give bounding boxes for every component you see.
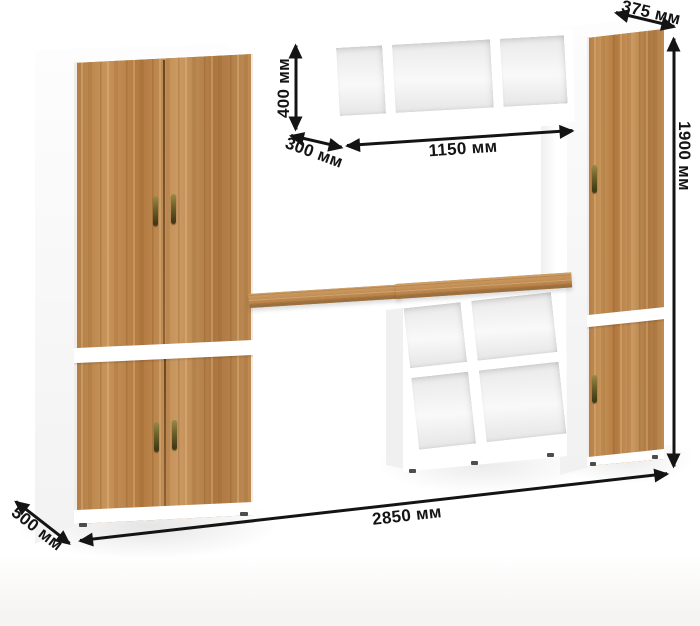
cube-opening xyxy=(404,302,467,368)
wall-shelf-compartments xyxy=(336,29,571,120)
door-handle-icon xyxy=(172,420,177,450)
door-handle-icon xyxy=(592,375,597,403)
wall-shelf xyxy=(302,28,575,140)
shelf-opening xyxy=(500,35,568,106)
door-handle-icon xyxy=(592,165,597,193)
cabinet-foot xyxy=(471,461,478,465)
left-cabinet-left-edge xyxy=(74,54,77,526)
cube-opening xyxy=(411,372,476,450)
shelf-opening xyxy=(392,39,494,112)
right-cabinet-left-edge xyxy=(587,29,589,466)
right-cabinet-divider xyxy=(584,307,671,328)
door-handle-icon xyxy=(154,422,159,452)
cabinet-foot xyxy=(547,453,554,457)
left-cabinet-lower-door-gap xyxy=(164,354,166,512)
dim-arrow-icon-1900 xyxy=(673,39,676,467)
left-cabinet-right-edge xyxy=(251,54,254,526)
dim-arrow-icon-400 xyxy=(295,46,298,130)
cube-shelf-side-panel xyxy=(386,306,404,469)
left-cabinet-upper-door-gap xyxy=(163,60,165,352)
cabinet-foot xyxy=(652,455,658,459)
floor-tint xyxy=(0,556,700,626)
cabinet-foot xyxy=(409,469,416,473)
shelf-opening xyxy=(336,45,386,115)
dim-label-column-height: 1900 мм xyxy=(674,116,694,196)
dim-label-hutch-width: 1150 мм xyxy=(422,136,503,162)
right-cabinet-front xyxy=(587,29,665,466)
cube-shelf-compartments xyxy=(404,292,568,459)
left-cabinet-front xyxy=(74,54,254,526)
door-handle-icon xyxy=(171,194,176,224)
desk-board-left xyxy=(249,284,402,308)
left-cabinet-side-panel xyxy=(33,48,76,546)
shelf-support-column xyxy=(541,126,567,288)
cube-shelf xyxy=(403,278,567,473)
dim-label-hutch-height: 400 мм xyxy=(274,53,294,123)
cube-opening xyxy=(479,362,566,442)
cube-opening xyxy=(471,292,557,360)
cabinet-foot xyxy=(240,512,248,516)
furniture-dimension-diagram: 400 мм 300 мм 1150 мм 375 мм 1900 мм 285… xyxy=(0,0,700,626)
cabinet-foot xyxy=(79,523,87,527)
door-handle-icon xyxy=(153,196,158,226)
cabinet-foot xyxy=(590,462,596,466)
